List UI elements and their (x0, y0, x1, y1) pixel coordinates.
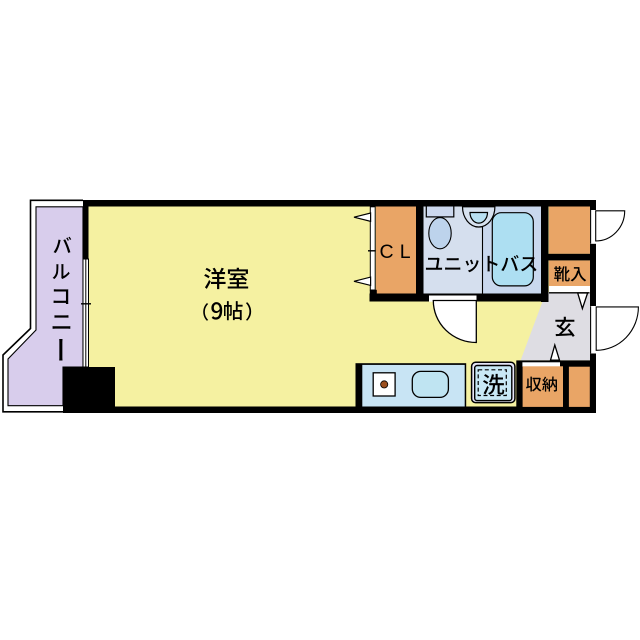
svg-text:CL: CL (380, 241, 417, 263)
